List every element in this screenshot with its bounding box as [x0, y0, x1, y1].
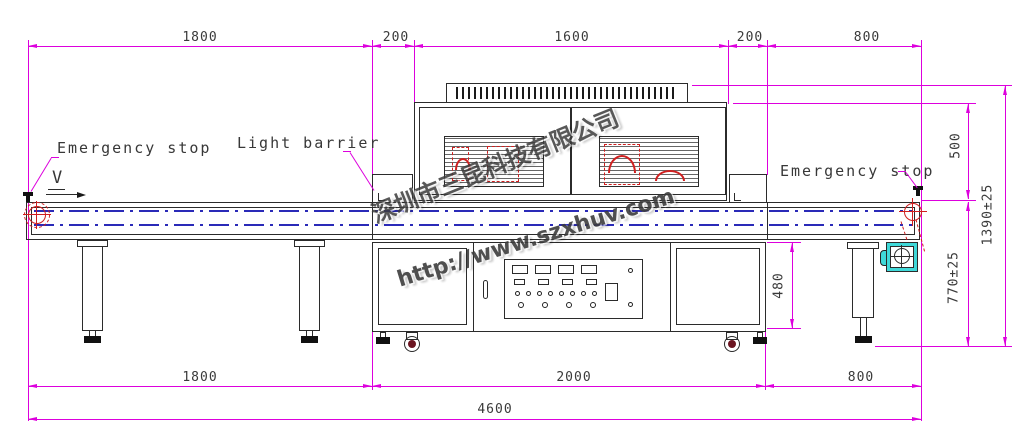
panel-switch [586, 279, 597, 285]
foot-pad [753, 337, 767, 344]
leader-line [350, 152, 375, 191]
dim-arrow [912, 44, 921, 48]
leader-line [31, 158, 52, 192]
dim-arrow [372, 384, 381, 388]
panel-switch [562, 279, 573, 285]
dim-arrow [912, 384, 921, 388]
leg [852, 248, 874, 318]
panel-button [518, 302, 524, 308]
leg [299, 246, 320, 331]
dim-480: 480 [772, 241, 787, 331]
dim-line-top [28, 46, 921, 47]
ext-line [733, 103, 976, 104]
dim-top-200b: 200 [737, 30, 763, 45]
belt-centerline [34, 210, 912, 212]
panel-button [590, 302, 596, 308]
ext-line [372, 332, 373, 390]
panel-button [542, 302, 548, 308]
dim-line-480 [792, 243, 793, 328]
dim-arrow [28, 417, 37, 421]
foot-pad [84, 336, 101, 343]
panel-display [512, 265, 528, 274]
dim-arrow [1003, 86, 1007, 95]
cabinet-door-right [676, 248, 760, 325]
ext-line [767, 40, 768, 175]
roller-belt-path [24, 202, 50, 228]
emergency-stop-button-right-stem [916, 190, 920, 196]
ext-line [875, 346, 1012, 347]
direction-underline [48, 189, 65, 190]
dim-arrow [756, 384, 765, 388]
foot-pad [301, 336, 318, 343]
label-emergency-stop-left: Emergency stop [57, 139, 211, 157]
direction-arrow-line [46, 194, 77, 195]
dim-arrow [719, 44, 728, 48]
roller-crosshair [912, 198, 913, 226]
dim-arrow [728, 44, 737, 48]
leader-tick [51, 157, 59, 158]
leg [82, 246, 103, 331]
ext-line [414, 40, 415, 104]
dim-arrow [765, 384, 774, 388]
dim-bottom-1800: 1800 [182, 370, 217, 385]
dim-line-770 [968, 202, 969, 346]
dim-arrow [912, 417, 921, 421]
dim-770: 770±25 [947, 233, 962, 323]
panel-button [548, 291, 553, 296]
panel-button [592, 291, 597, 296]
dim-arrow [790, 319, 794, 328]
caster-hub [408, 340, 416, 348]
dim-arrow [28, 44, 37, 48]
roller-right [904, 203, 922, 221]
caster-hub [728, 340, 736, 348]
exit-shield-mark [734, 200, 741, 201]
dim-line-overall [28, 419, 921, 420]
foot-pad [855, 336, 872, 343]
ext-line [922, 200, 976, 201]
ext-line [728, 40, 729, 104]
dim-top-200a: 200 [383, 30, 409, 45]
dim-arrow [966, 337, 970, 346]
dim-arrow [966, 202, 970, 211]
dim-arrow [767, 44, 776, 48]
panel-button [526, 291, 531, 296]
panel-display [581, 265, 597, 274]
roller-crosshair [899, 211, 927, 212]
label-direction-v: V [52, 168, 62, 188]
dim-line-500 [968, 104, 969, 199]
panel-display [535, 265, 551, 274]
dim-bottom-2000: 2000 [556, 370, 591, 385]
panel-switch [514, 279, 525, 285]
dim-arrow [1003, 337, 1007, 346]
panel-button [581, 291, 586, 296]
dim-arrow [966, 104, 970, 113]
panel-button [559, 291, 564, 296]
cabinet-divider [670, 242, 671, 332]
label-light-barrier: Light barrier [237, 134, 380, 152]
dim-arrow [28, 384, 37, 388]
dim-arrow [363, 44, 372, 48]
label-emergency-stop-right: Emergency stop [780, 162, 934, 180]
foot-stem [860, 317, 867, 337]
panel-indicator [628, 268, 633, 273]
panel-display [558, 265, 574, 274]
dim-arrow [372, 44, 381, 48]
panel-button [537, 291, 542, 296]
dim-line-1390 [1005, 86, 1006, 346]
motor-crosshair [891, 256, 913, 257]
dim-arrow [790, 243, 794, 252]
ext-line [692, 85, 1012, 86]
cabinet-handle [483, 280, 488, 299]
ext-line [921, 40, 922, 421]
panel-button [515, 291, 520, 296]
dim-1390: 1390±25 [981, 170, 996, 260]
dim-top-1600: 1600 [554, 30, 589, 45]
panel-button [566, 302, 572, 308]
panel-main-switch [605, 283, 618, 301]
motor-crosshair [901, 245, 902, 267]
conveyor-seam [767, 202, 768, 240]
dim-arrow [363, 384, 372, 388]
panel-indicator [628, 302, 633, 307]
dim-arrow [414, 44, 423, 48]
emergency-stop-button-left-stem [26, 196, 30, 202]
panel-button [570, 291, 575, 296]
dim-arrow [966, 190, 970, 199]
foot-pad [376, 337, 390, 344]
dim-bottom-800: 800 [848, 370, 874, 385]
direction-arrowhead [77, 192, 86, 198]
dim-line-bottom [28, 386, 921, 387]
dim-500: 500 [949, 101, 964, 191]
dim-overall-4600: 4600 [477, 402, 512, 417]
vent-grille-bars [456, 87, 678, 99]
dim-top-800: 800 [854, 30, 880, 45]
uv-conveyor-engineering-drawing: 1800 200 1600 200 800 500 770±25 1390±25… [0, 0, 1023, 433]
dim-top-1800: 1800 [182, 30, 217, 45]
belt-centerline [34, 224, 912, 226]
panel-switch [538, 279, 549, 285]
